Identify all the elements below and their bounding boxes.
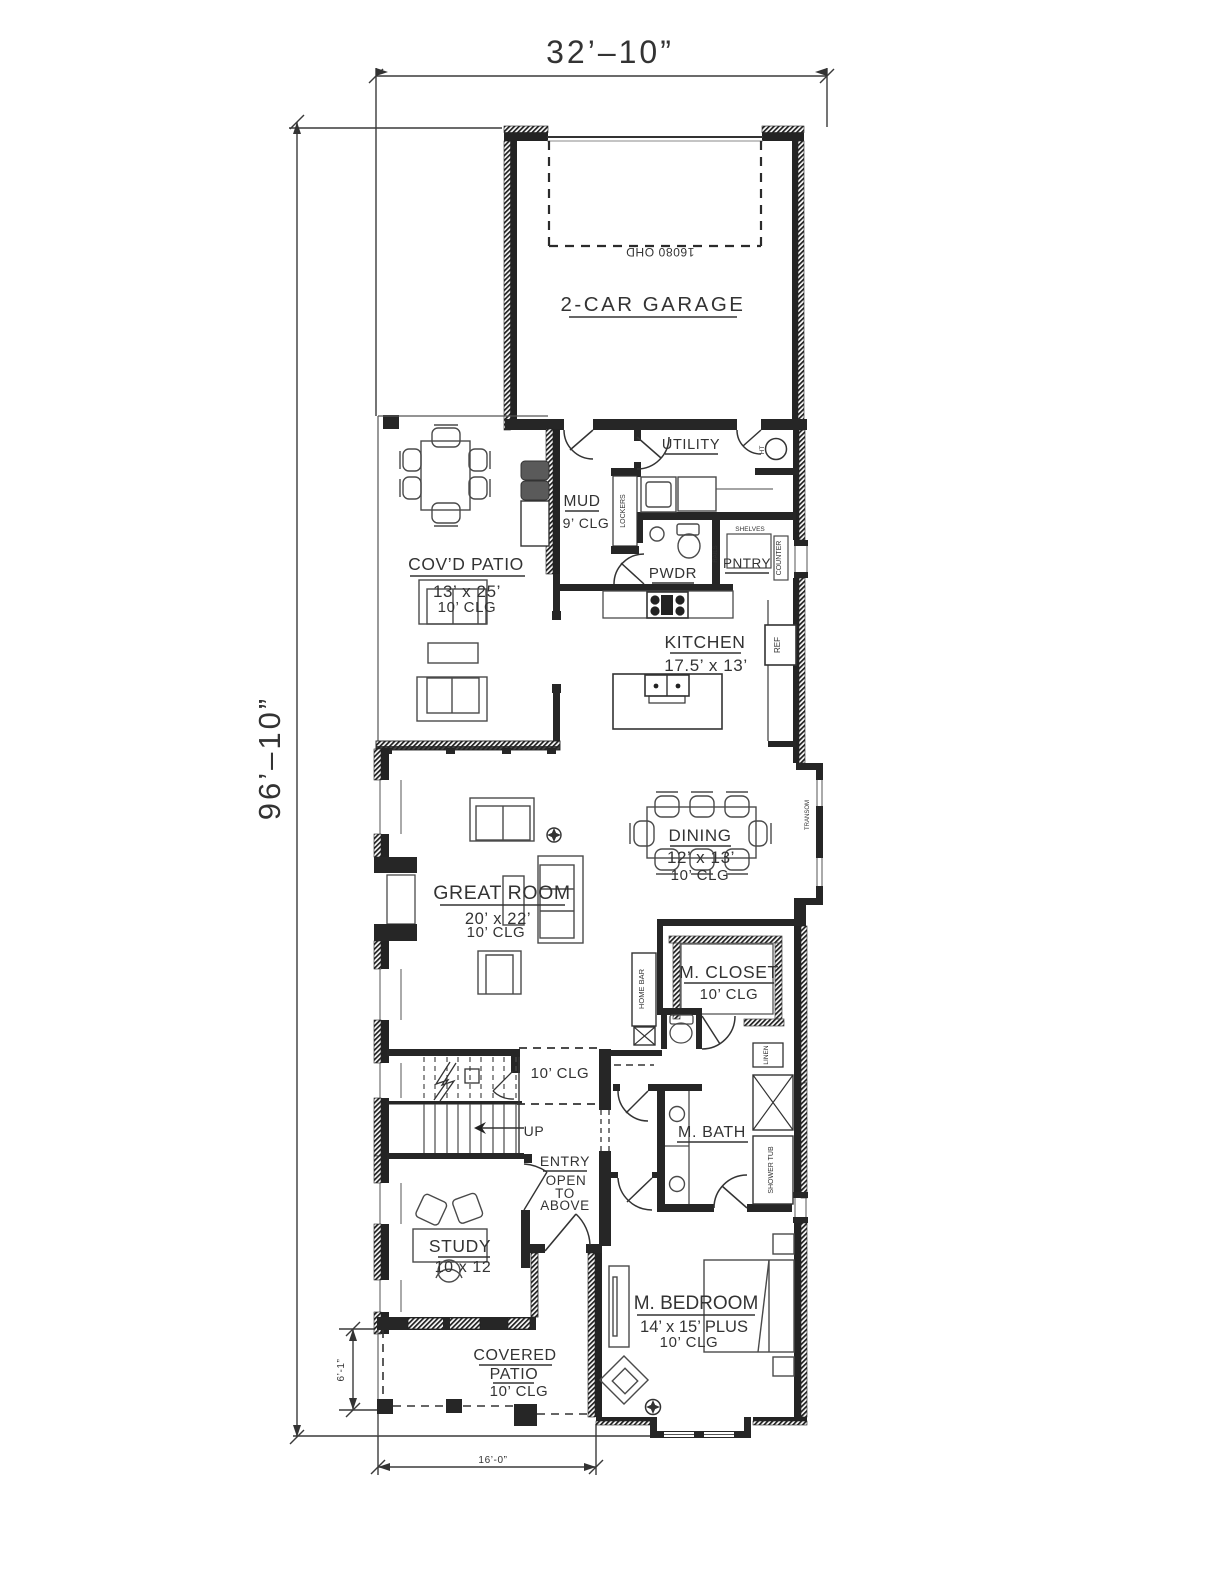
svg-text:10’ CLG: 10’ CLG (671, 867, 730, 884)
svg-text:LINEN: LINEN (763, 1045, 770, 1064)
svg-text:COUNTER: COUNTER (776, 541, 783, 576)
svg-text:32’–10”: 32’–10” (546, 34, 674, 70)
svg-text:10’ CLG: 10’ CLG (467, 924, 526, 941)
svg-text:HT: HT (759, 446, 766, 455)
svg-text:M. BATH: M. BATH (678, 1124, 746, 1141)
svg-text:KITCHEN: KITCHEN (664, 632, 745, 652)
svg-text:TRANSOM: TRANSOM (805, 800, 811, 830)
svg-text:PATIO: PATIO (490, 1366, 539, 1383)
svg-text:10’ CLG: 10’ CLG (660, 1334, 719, 1351)
svg-text:10’ CLG: 10’ CLG (438, 599, 497, 616)
svg-text:9’ CLG: 9’ CLG (563, 515, 610, 531)
svg-text:PWDR: PWDR (649, 565, 697, 582)
svg-text:DINING: DINING (668, 826, 731, 845)
svg-text:STUDY: STUDY (429, 1236, 491, 1256)
svg-text:16080 OHD: 16080 OHD (626, 245, 695, 259)
svg-text:LOCKERS: LOCKERS (620, 494, 627, 528)
svg-text:10’ CLG: 10’ CLG (490, 1383, 549, 1400)
svg-text:96’–10”: 96’–10” (252, 696, 287, 820)
svg-text:UP: UP (524, 1123, 545, 1139)
svg-text:12’ x 13’: 12’ x 13’ (667, 848, 735, 867)
svg-text:10’ CLG: 10’ CLG (531, 1065, 590, 1082)
svg-text:GREAT ROOM: GREAT ROOM (433, 882, 570, 904)
svg-text:6’-1”: 6’-1” (336, 1358, 347, 1381)
svg-text:MUD: MUD (563, 493, 600, 510)
svg-text:COVERED: COVERED (473, 1347, 556, 1364)
svg-text:RAILS: RAILS (713, 545, 719, 562)
svg-text:SHELVES: SHELVES (735, 526, 765, 533)
svg-text:HOME BAR: HOME BAR (637, 968, 646, 1009)
svg-text:M. CLOSET: M. CLOSET (679, 962, 779, 982)
svg-text:10’ CLG: 10’ CLG (700, 986, 759, 1003)
svg-text:REF: REF (773, 637, 782, 653)
svg-text:10 x 12: 10 x 12 (435, 1259, 492, 1276)
svg-text:M. BEDROOM: M. BEDROOM (634, 1293, 759, 1314)
svg-text:ABOVE: ABOVE (540, 1198, 590, 1213)
svg-text:17.5’ x 13’: 17.5’ x 13’ (664, 656, 747, 675)
svg-text:2-CAR GARAGE: 2-CAR GARAGE (561, 293, 746, 316)
svg-text:COV’D PATIO: COV’D PATIO (408, 554, 524, 574)
svg-text:UTILITY: UTILITY (662, 437, 720, 453)
svg-text:SHOWER TUB: SHOWER TUB (768, 1146, 775, 1194)
svg-text:16’-0”: 16’-0” (478, 1455, 507, 1466)
svg-text:PNTRY: PNTRY (723, 556, 771, 571)
svg-text:ENTRY: ENTRY (540, 1153, 590, 1169)
